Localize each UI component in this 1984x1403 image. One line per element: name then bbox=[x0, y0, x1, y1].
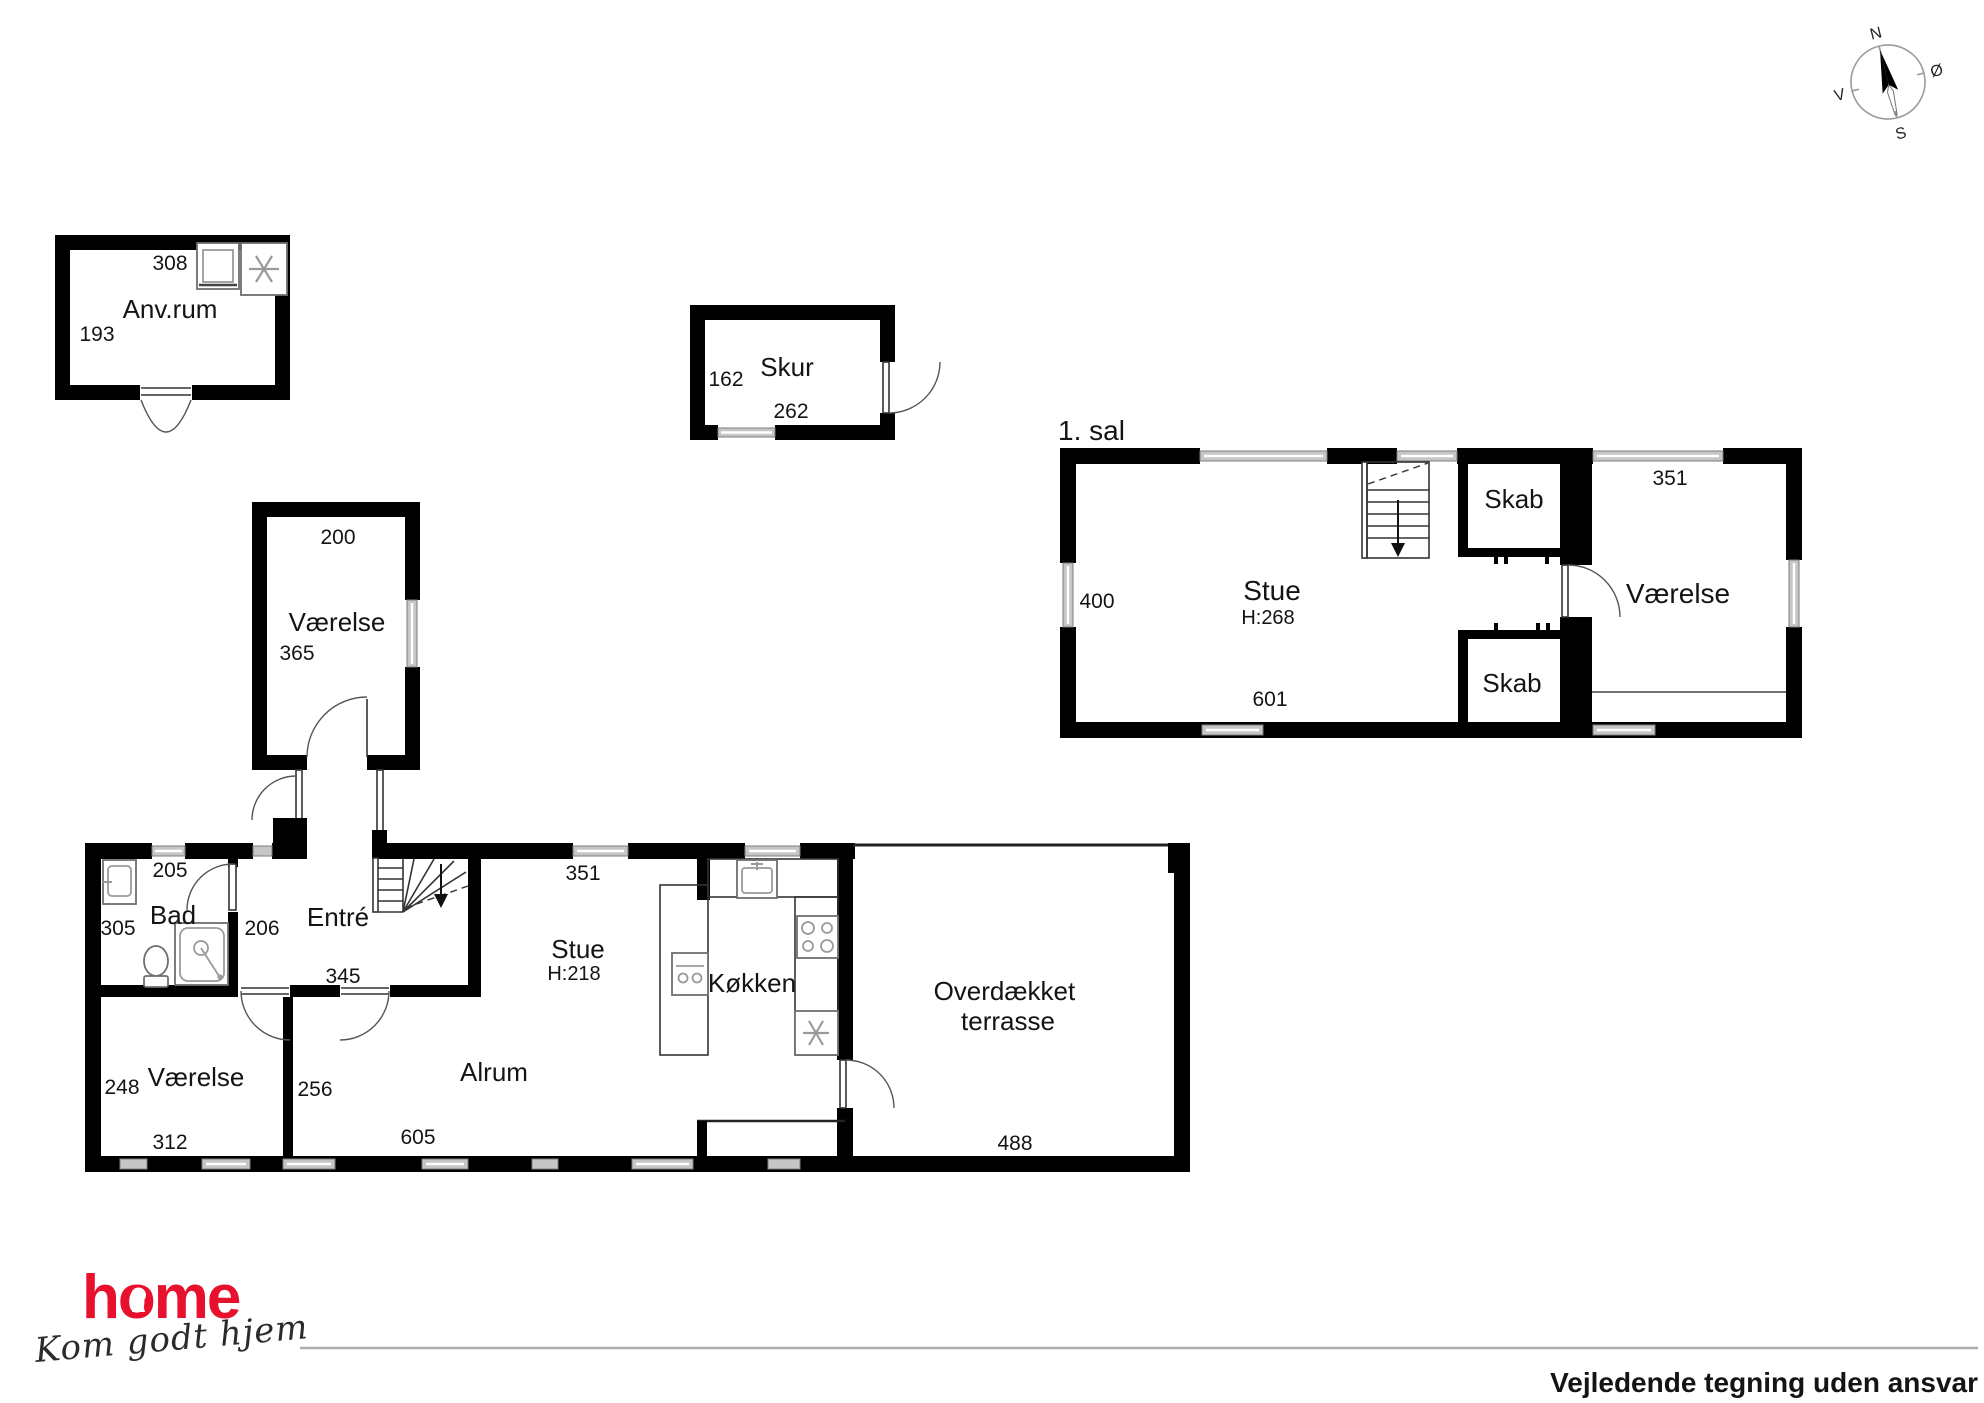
first-floor-vaerelse-label: Værelse bbox=[1626, 578, 1730, 609]
kitchen-sink-icon bbox=[737, 860, 777, 898]
room-label-bad: Bad bbox=[150, 900, 196, 930]
dim-345: 345 bbox=[325, 965, 360, 988]
compass-west-label: V bbox=[1833, 86, 1848, 105]
dim-351: 351 bbox=[565, 862, 600, 885]
first-floor-plan: 1. sal bbox=[1058, 415, 1802, 738]
room-label-stue: Stue bbox=[551, 934, 605, 964]
toilet-icon bbox=[144, 946, 168, 987]
anvrum-door bbox=[141, 388, 191, 432]
skur-window bbox=[718, 428, 775, 437]
shower-icon bbox=[175, 923, 228, 985]
north-arrow bbox=[1872, 48, 1904, 117]
stove-icon bbox=[797, 916, 838, 958]
first-floor-dim-left: 400 bbox=[1079, 590, 1114, 613]
floorplan-page: N Ø S V 3 bbox=[0, 0, 1984, 1403]
annex-window bbox=[407, 600, 417, 667]
room-label-koekken: Køkken bbox=[708, 968, 796, 998]
anvrum-dim-width: 308 bbox=[152, 252, 187, 275]
skur-dim-depth: 162 bbox=[708, 368, 743, 391]
kitchen-fixtures bbox=[660, 859, 838, 1055]
compass-north-label: N bbox=[1868, 24, 1883, 43]
staircase-icon bbox=[373, 858, 468, 912]
dim-305: 305 bbox=[100, 917, 135, 940]
first-floor-title: 1. sal bbox=[1058, 415, 1125, 446]
first-floor-dim-bottom: 601 bbox=[1252, 688, 1287, 711]
annex-corridor bbox=[252, 770, 387, 845]
compass-east-label: Ø bbox=[1929, 62, 1945, 82]
room-label-vaerelse: Værelse bbox=[148, 1062, 245, 1092]
skab-lower-label: Skab bbox=[1482, 668, 1541, 698]
keyhole-icon bbox=[131, 1288, 146, 1313]
room-label-alrum: Alrum bbox=[460, 1057, 528, 1087]
disclaimer-text: Vejledende tegning uden ansvar bbox=[1550, 1367, 1978, 1398]
footer: home Kom godt hjem Vejledende tegning ud… bbox=[32, 1263, 1978, 1398]
outbuilding-skur: Skur 162 262 bbox=[690, 305, 940, 440]
skur-dim-width: 262 bbox=[773, 400, 808, 423]
annex-dim-depth: 365 bbox=[279, 642, 314, 665]
dim-605: 605 bbox=[400, 1126, 435, 1149]
dim-312: 312 bbox=[152, 1131, 187, 1154]
anvrum-dim-depth: 193 bbox=[79, 323, 114, 346]
ground-floor-plan: 205 Bad 305 206 Entré 345 351 Stue H:218… bbox=[85, 843, 1190, 1172]
skab-upper-label: Skab bbox=[1484, 484, 1543, 514]
first-floor-stue-label: Stue bbox=[1243, 575, 1301, 606]
compass-rose: N Ø S V bbox=[1820, 12, 1957, 155]
first-floor-dim-top-right: 351 bbox=[1652, 467, 1687, 490]
dim-256: 256 bbox=[297, 1078, 332, 1101]
outbuilding-anvrum: 308 Anv.rum 193 bbox=[55, 235, 290, 432]
dim-248: 248 bbox=[104, 1076, 139, 1099]
annex-dim-width: 200 bbox=[320, 526, 355, 549]
dim-488: 488 bbox=[997, 1132, 1032, 1155]
room-label-terrasse: Overdækket terrasse bbox=[934, 976, 1083, 1036]
annex-vaerelse: 200 Værelse 365 bbox=[252, 502, 420, 845]
skur-room-label: Skur bbox=[760, 352, 814, 382]
skab-upper-walls bbox=[1458, 464, 1560, 564]
room-label-entre: Entré bbox=[307, 902, 369, 932]
annex-door bbox=[307, 697, 367, 757]
first-floor-stue-height: H:268 bbox=[1241, 607, 1294, 629]
freezer-icon bbox=[241, 243, 287, 295]
first-floor-vaerelse-door bbox=[1562, 565, 1620, 617]
freezer-icon bbox=[795, 1011, 838, 1055]
sink-icon bbox=[103, 860, 136, 904]
dim-205: 205 bbox=[152, 859, 187, 882]
washing-machine-icon bbox=[197, 243, 239, 289]
room-label-stue-height: H:218 bbox=[547, 963, 600, 985]
annex-room-label: Værelse bbox=[289, 607, 386, 637]
dishwasher-icon bbox=[672, 953, 708, 995]
staircase-icon bbox=[1362, 462, 1429, 558]
compass-south-label: S bbox=[1894, 124, 1908, 143]
skur-door bbox=[883, 362, 940, 413]
dim-206: 206 bbox=[244, 917, 279, 940]
anvrum-room-label: Anv.rum bbox=[123, 294, 218, 324]
